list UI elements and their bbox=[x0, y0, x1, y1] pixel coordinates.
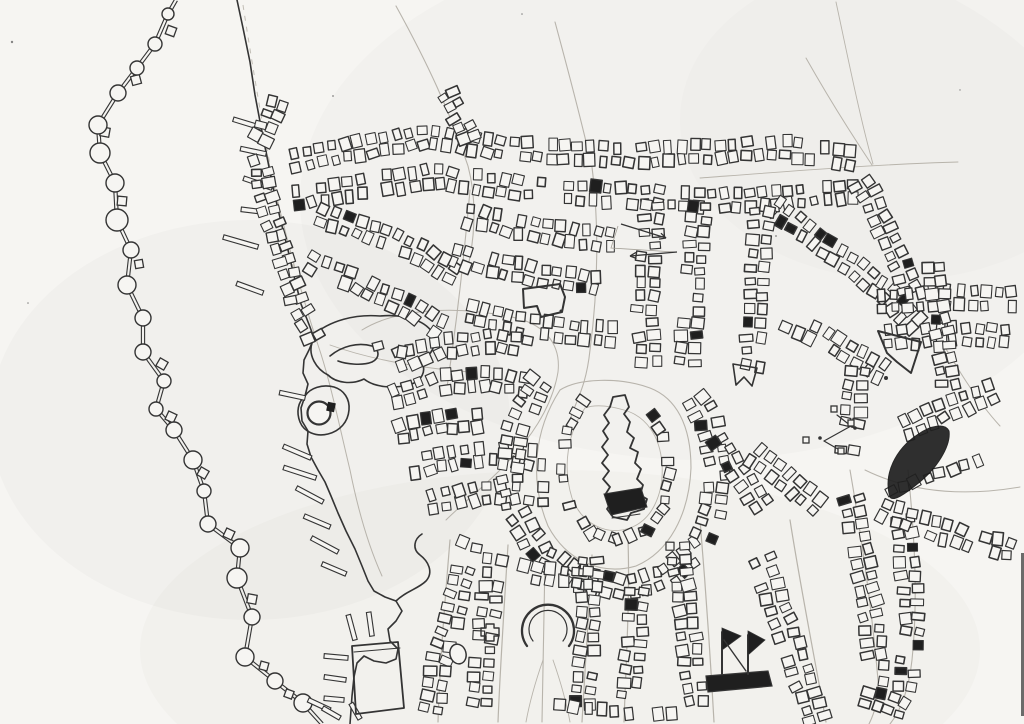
city-map-svg bbox=[0, 0, 1024, 724]
hand-drawn-city-map bbox=[0, 0, 1024, 724]
